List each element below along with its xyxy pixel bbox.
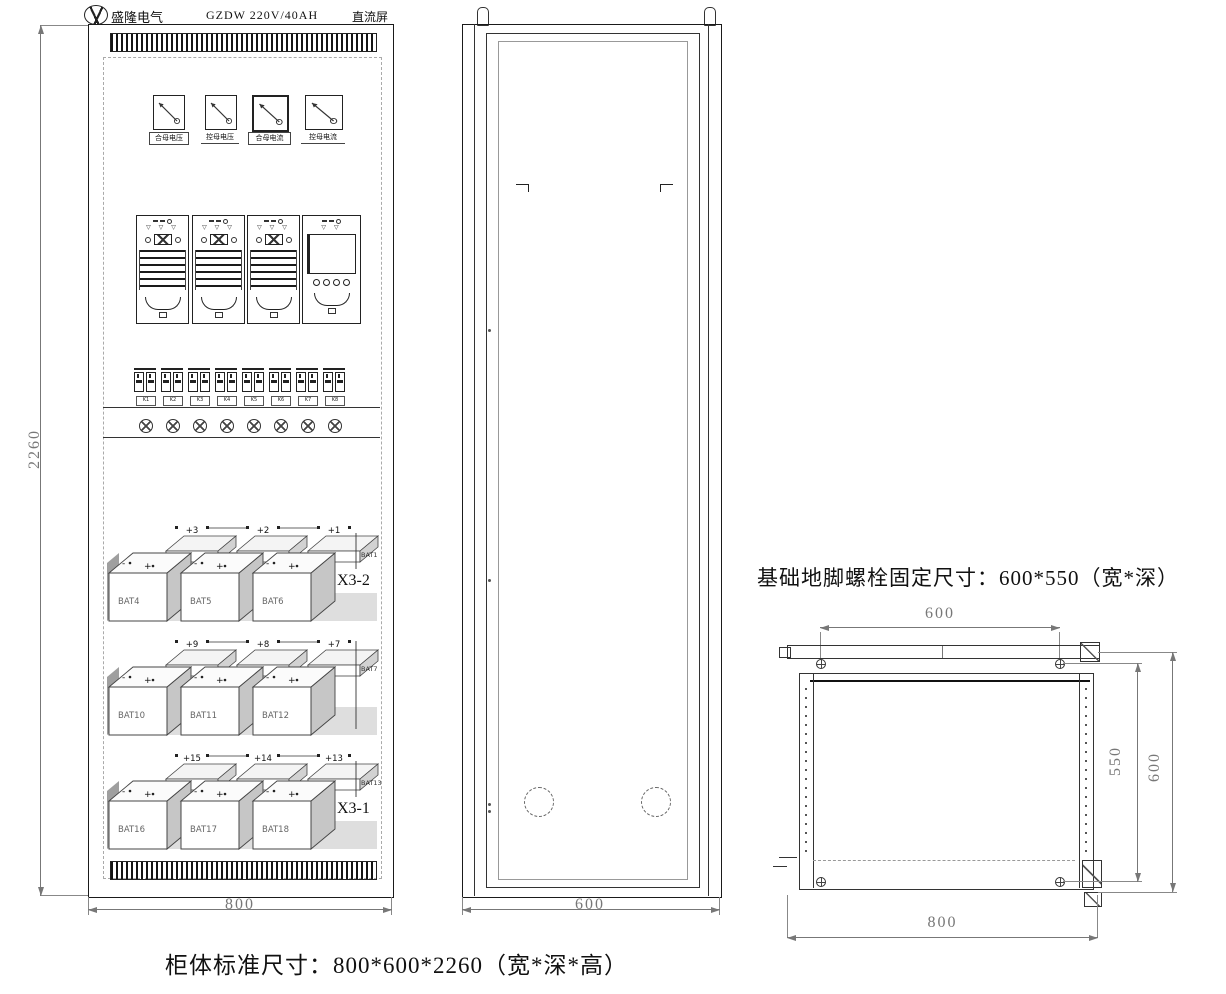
dimension-600: 600 — [540, 896, 640, 914]
battery-name: BAT17 — [190, 825, 217, 835]
meter-label: 控母电压 — [201, 132, 239, 144]
rail-line — [1079, 673, 1080, 888]
battery-name: BAT18 — [262, 825, 289, 835]
circuit-breaker — [269, 368, 291, 393]
battery-name: BAT6 — [262, 597, 284, 607]
drawing-canvas: 盛隆电气 GZDW 220V/40AH 直流屏 800 2260 — [0, 0, 1226, 994]
indicator-lamp-icon — [274, 419, 288, 433]
plan-body-outline — [799, 673, 1094, 890]
top-vent-grille — [110, 33, 377, 52]
circuit-breaker — [215, 368, 237, 393]
circuit-breaker — [323, 368, 345, 393]
polarity-minus: - — [122, 787, 125, 797]
hinge-icon — [1082, 860, 1102, 888]
rectifier-module: ▽ ▽ ▽ — [136, 215, 189, 324]
module-status-icons — [264, 219, 283, 223]
arrow-icon — [787, 935, 796, 941]
module-display-row — [145, 234, 181, 245]
panel-meter — [205, 95, 237, 130]
battery-name: BAT5 — [190, 597, 212, 607]
panel-divider-line — [103, 407, 380, 408]
battery-terminal-label: +3 — [186, 526, 199, 536]
breaker-pole-icon — [296, 372, 306, 392]
screw-dot-icon — [488, 803, 491, 806]
battery-name: BAT16 — [118, 825, 145, 835]
module-indicator-icons: ▽ ▽ — [321, 224, 341, 232]
meter-needle-icon — [254, 97, 287, 130]
vent-slots — [139, 250, 186, 290]
lifting-eye-icon — [704, 7, 716, 26]
arrow-icon — [711, 907, 720, 913]
breaker-pole-icon — [173, 372, 183, 392]
anchor-bolt-icon — [816, 877, 826, 887]
battery-terminal-label: +7 — [328, 640, 341, 650]
module-status-icons — [209, 219, 228, 223]
connector-icon — [210, 234, 228, 245]
screw-icon — [175, 237, 181, 243]
extension-line — [88, 897, 89, 915]
tick-icon — [160, 220, 165, 222]
polarity-plus: + — [144, 562, 152, 572]
module-display-row — [256, 234, 292, 245]
led-icon — [278, 219, 283, 224]
monitor-module: ▽ ▽ — [302, 215, 361, 324]
module-foot-label — [159, 312, 167, 318]
breaker-pole-icon — [308, 372, 318, 392]
extension-line — [820, 632, 821, 658]
dimension-line-depth — [1172, 652, 1173, 892]
module-indicator-icons: ▽ ▽ ▽ — [202, 224, 235, 232]
tick-icon — [271, 220, 276, 222]
extension-line — [1063, 881, 1142, 882]
breaker-pole-icon — [134, 372, 144, 392]
polarity-plus: + — [144, 790, 152, 800]
dimension-550: 550 — [1107, 731, 1125, 791]
extension-line — [391, 897, 392, 915]
module-foot-label — [328, 308, 336, 314]
mounting-mark-icon — [660, 184, 673, 192]
arrow-icon — [820, 625, 829, 631]
screw-icon — [201, 237, 207, 243]
polarity-plus: + — [288, 676, 296, 686]
polarity-minus: - — [194, 787, 197, 797]
meter-label: 合母电压 — [149, 132, 189, 145]
module-indicator-icons: ▽ ▽ ▽ — [257, 224, 290, 232]
breaker-pole-icon — [254, 372, 264, 392]
indicator-lamp-icon — [139, 419, 153, 433]
side-door-inner — [498, 41, 688, 880]
door-swing-dashed-line — [813, 860, 1075, 861]
arrow-icon — [383, 907, 392, 913]
battery-name: BAT4 — [118, 597, 140, 607]
strip-center-mark — [942, 646, 943, 658]
led-icon — [223, 219, 228, 224]
back-panel-strip — [787, 645, 1100, 659]
tick-icon — [329, 220, 334, 222]
dimension-800: 800 — [190, 896, 290, 914]
indicator-lamp-icon — [166, 419, 180, 433]
plan-inner-wall — [810, 680, 1090, 682]
module-foot-label — [215, 312, 223, 318]
breaker-label: K1 — [136, 396, 156, 406]
battery-shelf: +15BAT15+14BAT14+13BAT13-+BAT16-+BAT17-+… — [104, 735, 381, 853]
arrow-icon — [1170, 883, 1176, 892]
company-logo-icon — [84, 5, 108, 25]
anchor-bolt-icon — [816, 659, 826, 669]
module-handle — [314, 293, 350, 306]
battery-name: BAT13 — [361, 779, 381, 787]
polarity-minus: - — [194, 559, 197, 569]
polarity-plus: + — [288, 562, 296, 572]
battery-name: BAT1 — [361, 551, 378, 559]
vent-slots — [250, 250, 297, 290]
lifting-eye-icon — [477, 7, 489, 26]
mounting-mark-icon — [516, 184, 529, 192]
arrow-icon — [88, 907, 97, 913]
tick-icon — [322, 220, 327, 222]
breaker-pole-icon — [188, 372, 198, 392]
module-handle — [145, 297, 181, 310]
rectifier-module: ▽ ▽ ▽ — [247, 215, 300, 324]
dimension-bolt-600: 600 — [890, 605, 990, 623]
indicator-lamp-icon — [247, 419, 261, 433]
battery-terminal-label: +14 — [254, 754, 272, 764]
dimension-600-depth: 600 — [1146, 737, 1164, 797]
arrow-icon — [1135, 873, 1141, 882]
arrow-icon — [38, 25, 44, 34]
panel-divider-line — [103, 437, 380, 438]
panel-meter — [252, 95, 289, 132]
circuit-breaker — [188, 368, 210, 393]
screw-dot-icon — [488, 329, 491, 332]
connector-icon — [265, 234, 283, 245]
polarity-minus: - — [122, 559, 125, 569]
meter-needle-icon — [206, 96, 236, 129]
led-icon — [167, 219, 172, 224]
anchor-bolt-icon — [1055, 877, 1065, 887]
breaker-pole-icon — [227, 372, 237, 392]
arrow-icon — [1170, 652, 1176, 661]
company-name: 盛隆电气 — [111, 7, 163, 26]
frame-post-line — [708, 24, 709, 896]
foot-mark — [779, 857, 797, 858]
polarity-minus: - — [122, 673, 125, 683]
dimension-line-width — [88, 909, 392, 910]
rail-hole-column — [1085, 688, 1087, 856]
lock-box-icon — [1084, 892, 1102, 907]
polarity-plus: + — [216, 676, 224, 686]
breaker-pole-icon — [200, 372, 210, 392]
meter-label: 控母电流 — [301, 132, 345, 144]
arrow-icon — [462, 907, 471, 913]
breaker-label: K6 — [271, 396, 291, 406]
button-icon — [313, 279, 320, 286]
polarity-minus: - — [266, 673, 269, 683]
extension-line — [1097, 895, 1098, 937]
circuit-breaker — [161, 368, 183, 393]
indicator-lamp-icon — [193, 419, 207, 433]
module-foot-label — [270, 312, 278, 318]
terminal-block-tag: X3-2 — [337, 572, 370, 589]
extension-line — [787, 895, 788, 937]
rail-hole-column — [805, 688, 807, 856]
breaker-label: K4 — [217, 396, 237, 406]
arrow-icon — [1051, 625, 1060, 631]
meter-label: 合母电流 — [248, 132, 291, 145]
dimension-line-bolt-width — [820, 627, 1060, 628]
indicator-lamp-icon — [301, 419, 315, 433]
breaker-label: K3 — [190, 396, 210, 406]
tick-icon — [216, 220, 221, 222]
polarity-plus: + — [288, 790, 296, 800]
vent-slots — [195, 250, 242, 290]
panel-meter — [153, 95, 185, 130]
bottom-vent-grille — [110, 861, 377, 880]
dimension-800-plan: 800 — [890, 914, 995, 932]
side-door-panel — [486, 33, 700, 888]
dimension-line-height — [40, 25, 41, 896]
module-indicator-icons: ▽ ▽ ▽ — [146, 224, 179, 232]
rail-line — [813, 673, 814, 888]
circuit-breaker — [242, 368, 264, 393]
monitor-buttons — [313, 279, 350, 286]
breaker-pole-icon — [146, 372, 156, 392]
led-icon — [336, 219, 341, 224]
rectifier-module: ▽ ▽ ▽ — [192, 215, 245, 324]
arrow-icon — [1135, 663, 1141, 672]
anchor-bolt-icon — [1055, 659, 1065, 669]
breaker-label: K2 — [163, 396, 183, 406]
screw-dot-icon — [488, 810, 491, 813]
screw-icon — [256, 237, 262, 243]
arrow-icon — [1089, 935, 1098, 941]
extension-line — [1059, 632, 1060, 658]
battery-shelf: +9BAT9+8BAT8+7BAT7-+BAT10-+BAT11-+BAT12 — [104, 621, 381, 739]
screw-icon — [231, 237, 237, 243]
extension-line — [462, 897, 463, 915]
button-icon — [333, 279, 340, 286]
meter-needle-icon — [154, 96, 184, 129]
battery-name: BAT7 — [361, 665, 378, 673]
tick-icon — [209, 220, 214, 222]
frame-post-line — [474, 24, 475, 896]
extension-line — [1063, 663, 1142, 664]
module-handle — [256, 297, 292, 310]
screw-icon — [286, 237, 292, 243]
panel-meter — [305, 95, 343, 130]
breaker-pole-icon — [242, 372, 252, 392]
extension-line — [1098, 892, 1177, 893]
product-name: 直流屏 — [352, 8, 388, 25]
model-text: GZDW 220V/40AH — [206, 8, 318, 23]
tick-icon — [264, 220, 269, 222]
screw-dot-icon — [488, 579, 491, 582]
breaker-label: K7 — [298, 396, 318, 406]
cable-hole-icon — [524, 787, 554, 817]
breaker-label: K8 — [325, 396, 345, 406]
cable-hole-icon — [641, 787, 671, 817]
indicator-lamp-icon — [328, 419, 342, 433]
battery-terminal-label: +15 — [183, 754, 201, 764]
battery-shelf: +3BAT3+2BAT2+1BAT1-+BAT4-+BAT5-+BAT6X3-2 — [104, 507, 381, 625]
dimension-line-depth — [462, 909, 720, 910]
hinge-icon — [1080, 642, 1100, 662]
breaker-pole-icon — [161, 372, 171, 392]
breaker-pole-icon — [215, 372, 225, 392]
module-display-row — [201, 234, 237, 245]
foot-mark — [773, 866, 787, 867]
button-icon — [343, 279, 350, 286]
module-handle — [201, 297, 237, 310]
extension-line — [719, 897, 720, 915]
button-icon — [323, 279, 330, 286]
breaker-pole-icon — [323, 372, 333, 392]
dimension-line-bolt-depth — [1137, 663, 1138, 882]
connector-icon — [154, 234, 172, 245]
indicator-lamp-icon — [220, 419, 234, 433]
polarity-plus: + — [144, 676, 152, 686]
battery-name: BAT12 — [262, 711, 289, 721]
module-status-icons — [153, 219, 172, 223]
battery-name: BAT11 — [190, 711, 217, 721]
extension-line — [1098, 652, 1177, 653]
strip-end-cap — [779, 647, 791, 658]
battery-terminal-label: +13 — [325, 754, 343, 764]
module-status-icons — [322, 219, 341, 223]
meter-needle-icon — [306, 96, 342, 129]
terminal-block-tag: X3-1 — [337, 800, 370, 817]
breaker-pole-icon — [269, 372, 279, 392]
dimension-2260: 2260 — [26, 416, 44, 482]
breaker-label: K5 — [244, 396, 264, 406]
tick-icon — [153, 220, 158, 222]
polarity-minus: - — [194, 673, 197, 683]
polarity-plus: + — [216, 562, 224, 572]
battery-name: BAT10 — [118, 711, 145, 721]
circuit-breaker — [134, 368, 156, 393]
screw-icon — [145, 237, 151, 243]
battery-terminal-label: +8 — [257, 640, 270, 650]
battery-terminal-label: +2 — [257, 526, 270, 536]
caption: 柜体标准尺寸：800*600*2260（宽*深*高） — [165, 946, 628, 980]
breaker-pole-icon — [281, 372, 291, 392]
breaker-pole-icon — [335, 372, 345, 392]
battery-terminal-label: +1 — [328, 526, 341, 536]
arrow-icon — [38, 887, 44, 896]
extension-line — [40, 25, 88, 26]
monitor-screen — [307, 234, 356, 274]
side-outline — [462, 24, 722, 898]
polarity-plus: + — [216, 790, 224, 800]
polarity-minus: - — [266, 787, 269, 797]
circuit-breaker — [296, 368, 318, 393]
polarity-minus: - — [266, 559, 269, 569]
dimension-line-width — [787, 937, 1098, 938]
foundation-note: 基础地脚螺栓固定尺寸：600*550（宽*深） — [757, 562, 1179, 592]
battery-terminal-label: +9 — [186, 640, 199, 650]
extension-line — [40, 895, 88, 896]
